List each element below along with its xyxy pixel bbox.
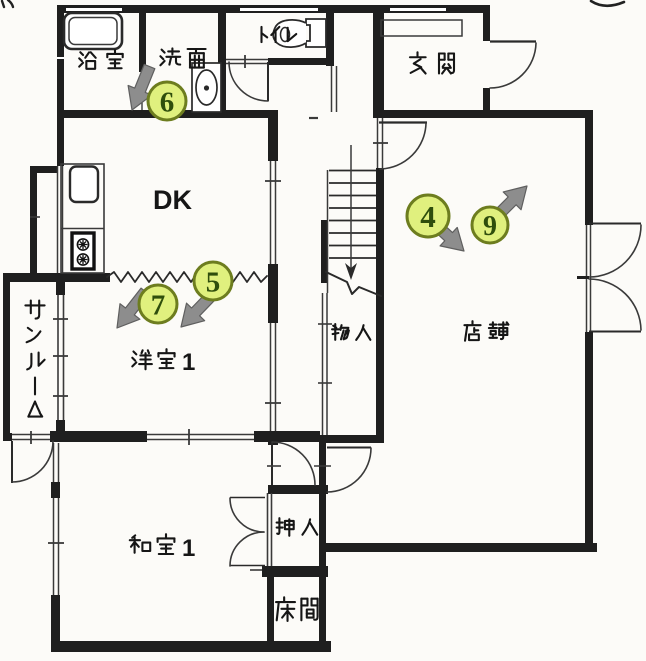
- svg-text:DK: DK: [153, 185, 192, 215]
- svg-text:5: 5: [206, 266, 221, 298]
- svg-text:9: 9: [483, 211, 497, 242]
- svg-text:7: 7: [151, 289, 166, 321]
- svg-text:6: 6: [160, 86, 175, 118]
- svg-text:1: 1: [182, 349, 195, 376]
- svg-text:4: 4: [420, 199, 436, 234]
- svg-text:1: 1: [182, 535, 195, 562]
